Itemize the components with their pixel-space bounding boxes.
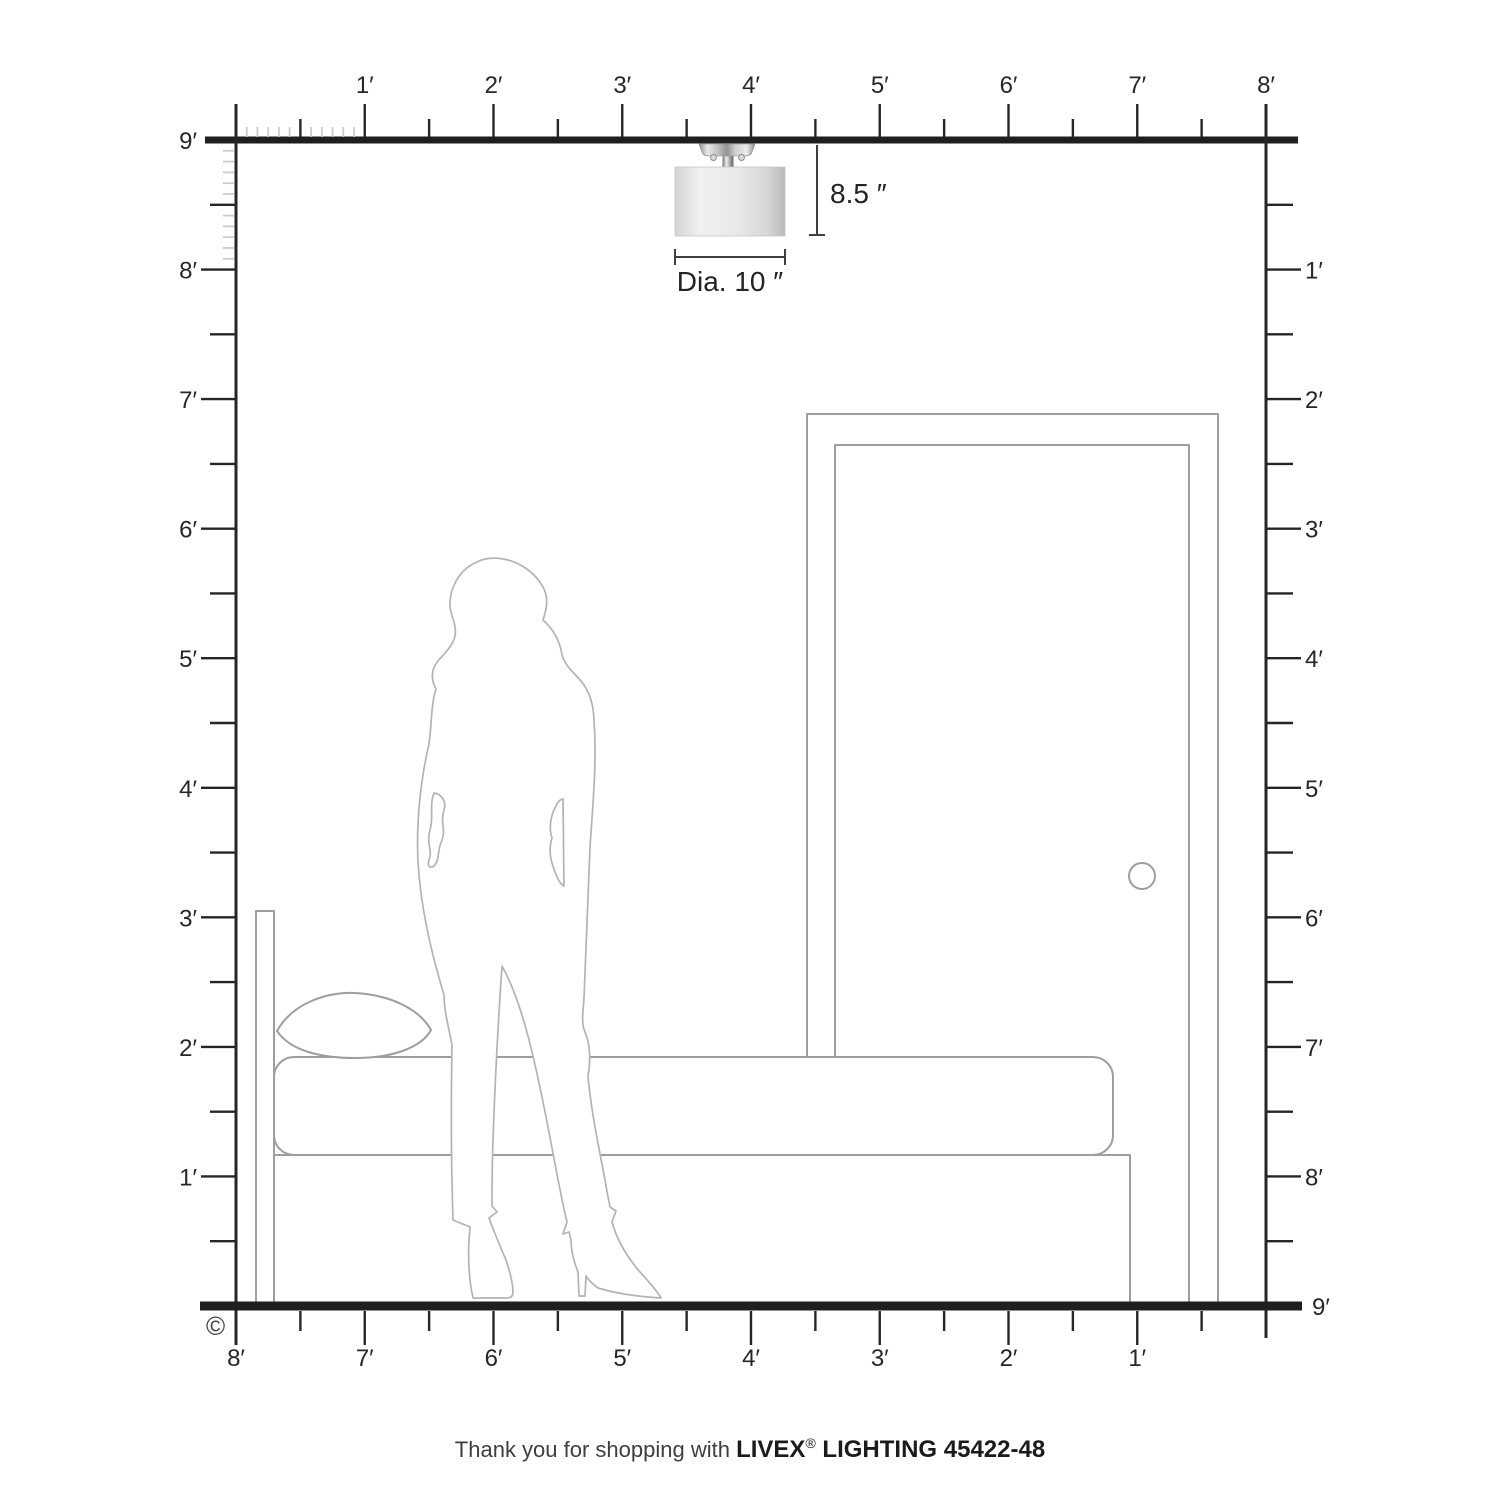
top-ruler-label: 5′ [871,72,889,99]
bottom-ruler-label: 7′ [356,1345,374,1372]
canopy-screw-icon [711,155,717,161]
ceiling-light-fixture [675,144,785,236]
canopy-screw-icon [739,155,745,161]
dimension-diagram-page: 1′2′3′4′5′6′7′8′ 9′8′7′6′5′4′3′2′1′ 1′2′… [0,0,1500,1500]
right-ruler-label: 7′ [1305,1035,1323,1062]
top-ruler-label: 1′ [356,72,374,99]
right-ruler-label: 5′ [1305,776,1323,803]
footer-prefix: Thank you for shopping with [455,1437,736,1462]
fixture-canopy [699,144,755,156]
right-ruler-label: 9′ [1312,1294,1330,1321]
right-ruler-label: 2′ [1305,387,1323,414]
bottom-ruler-label: 1′ [1128,1345,1146,1372]
bottom-ruler-label: 5′ [613,1345,631,1372]
diameter-dimension: Dia. 10 ″ [675,249,785,297]
copyright-symbol: © [206,1311,225,1341]
bottom-ruler-label: 2′ [1000,1345,1018,1372]
bottom-ruler-label: 8′ [227,1345,245,1372]
right-ruler: 1′2′3′4′5′6′7′8′9′ [1267,205,1330,1321]
left-ruler-label: 6′ [179,517,197,544]
fixture-height-label: 8.5 ″ [830,178,887,209]
top-ruler-label: 6′ [1000,72,1018,99]
left-ruler-label: 7′ [179,387,197,414]
left-ruler-label: 5′ [179,646,197,673]
left-ruler-label: 4′ [179,776,197,803]
product-dimension-diagram: 1′2′3′4′5′6′7′8′ 9′8′7′6′5′4′3′2′1′ 1′2′… [0,0,1500,1500]
top-ruler-label: 3′ [613,72,631,99]
top-ruler-label: 8′ [1257,72,1275,99]
bottom-ruler-label: 4′ [742,1345,760,1372]
left-ruler-label: 8′ [179,258,197,285]
bottom-ruler-label: 6′ [485,1345,503,1372]
right-ruler-label: 8′ [1305,1164,1323,1191]
door-knob [1129,863,1155,889]
bed-pillow [277,993,431,1058]
footer-text: Thank you for shopping with LIVEX® LIGHT… [455,1435,1045,1463]
fixture-diameter-label: Dia. 10 ″ [677,266,783,297]
drum-shade [675,167,785,236]
left-ruler-label: 9′ [179,128,197,155]
right-ruler-label: 1′ [1305,258,1323,285]
bed-mattress [274,1057,1113,1155]
left-ruler-label: 1′ [179,1164,197,1191]
bottom-ruler-label: 3′ [871,1345,889,1372]
bed-base [274,1155,1130,1305]
top-ruler-label: 2′ [485,72,503,99]
left-ruler-label: 2′ [179,1035,197,1062]
top-ruler: 1′2′3′4′5′6′7′8′ [247,72,1276,137]
right-ruler-label: 6′ [1305,905,1323,932]
footer-brand: LIVEX [736,1436,805,1463]
left-ruler-label: 3′ [179,905,197,932]
height-dimension: 8.5 ″ [809,145,887,235]
top-ruler-label: 4′ [742,72,760,99]
bottom-ruler: 8′7′6′5′4′3′2′1′ [227,1311,1202,1372]
top-ruler-label: 7′ [1128,72,1146,99]
right-ruler-label: 3′ [1305,517,1323,544]
left-ruler: 9′8′7′6′5′4′3′2′1′ [179,128,235,1241]
footer-model-number: LIGHTING 45422-48 [816,1436,1045,1463]
right-ruler-label: 4′ [1305,646,1323,673]
bed-headboard [256,911,274,1304]
